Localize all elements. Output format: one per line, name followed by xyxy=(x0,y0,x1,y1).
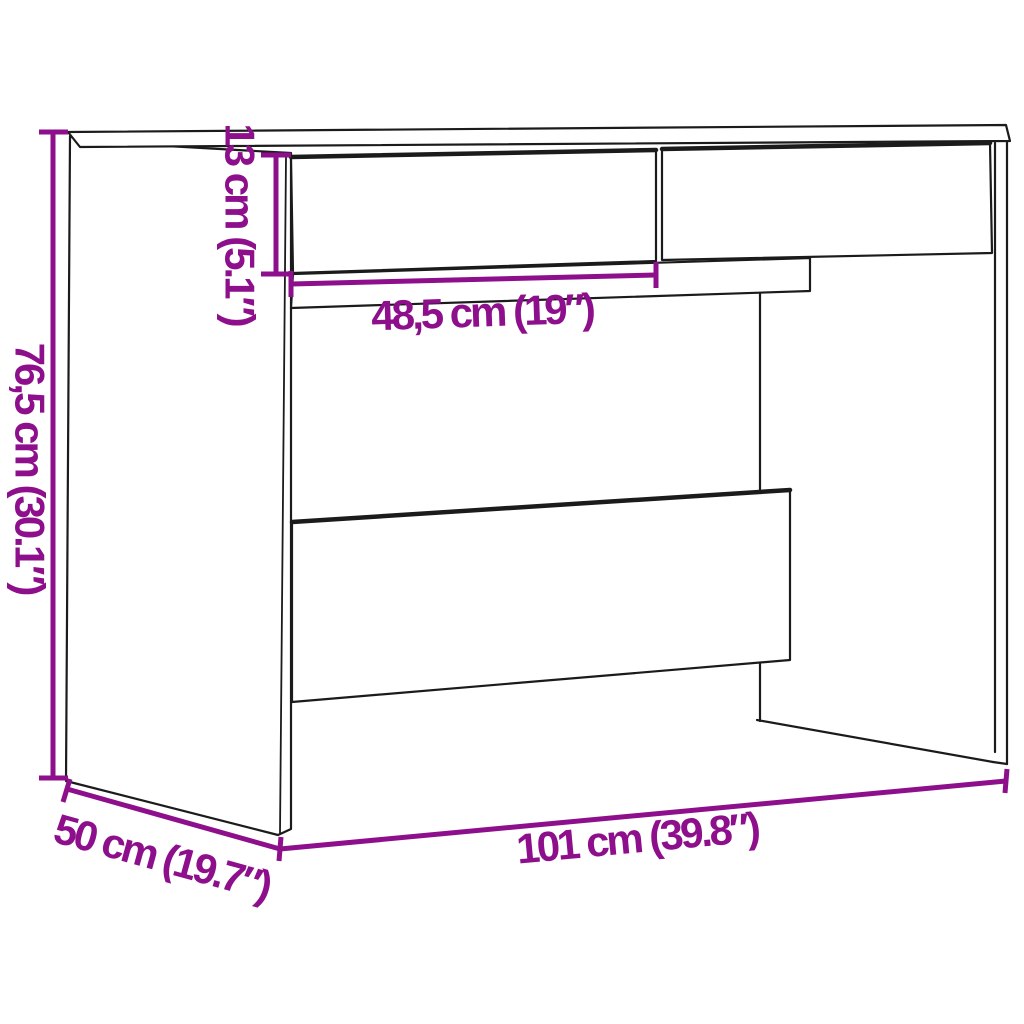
right-panel-foot xyxy=(993,762,1007,764)
back-panel xyxy=(292,490,790,702)
width-tick-right xyxy=(1005,769,1007,793)
depth-tick-left xyxy=(63,779,70,802)
diagram-canvas: 76,5 cm (30.1″) 13 cm (5.1″) 48,5 cm (19… xyxy=(0,0,1024,1024)
right-panel-bottom-edge xyxy=(757,720,993,762)
desk-drawing xyxy=(66,125,1010,835)
width-label: 101 cm (39.8″) xyxy=(514,803,760,872)
drawer-height-label: 13 cm (5.1″) xyxy=(217,123,264,325)
dimension-width: 101 cm (39.8″) xyxy=(279,769,1007,873)
height-label: 76,5 cm (30.1″) xyxy=(7,343,54,595)
drawer-left xyxy=(291,150,656,273)
dimension-height: 76,5 cm (30.1″) xyxy=(7,132,69,778)
desk-dimension-diagram: 76,5 cm (30.1″) 13 cm (5.1″) 48,5 cm (19… xyxy=(0,0,1024,1024)
drawer-width-label: 48,5 cm (19″) xyxy=(370,285,594,340)
drawer-right xyxy=(662,143,992,260)
